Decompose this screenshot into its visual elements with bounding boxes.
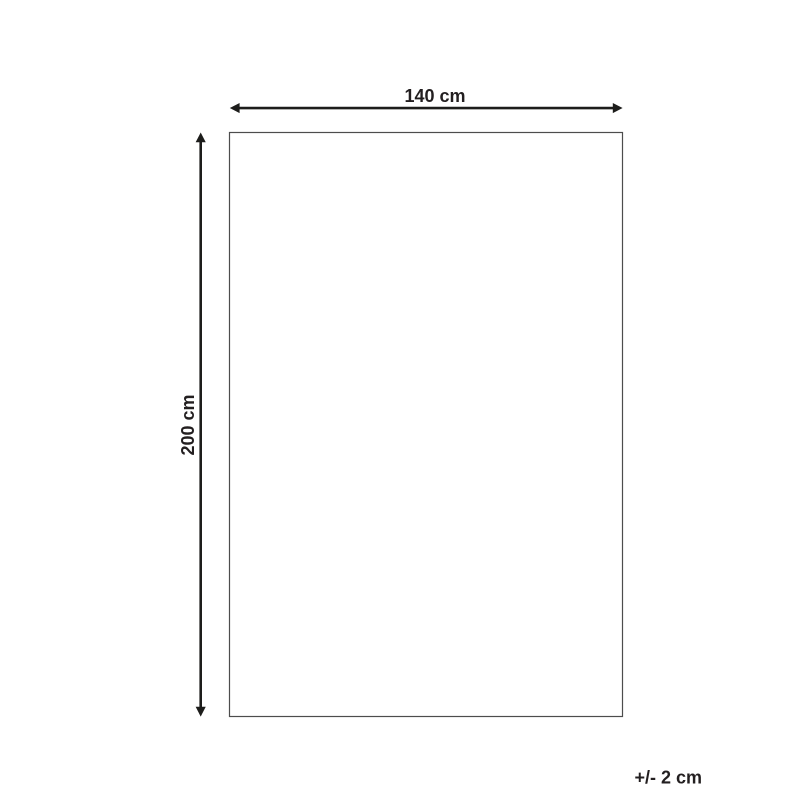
svg-text:200 cm: 200 cm — [178, 394, 198, 455]
svg-text:+/- 2 cm: +/- 2 cm — [635, 768, 703, 788]
svg-text:140 cm: 140 cm — [404, 86, 465, 106]
